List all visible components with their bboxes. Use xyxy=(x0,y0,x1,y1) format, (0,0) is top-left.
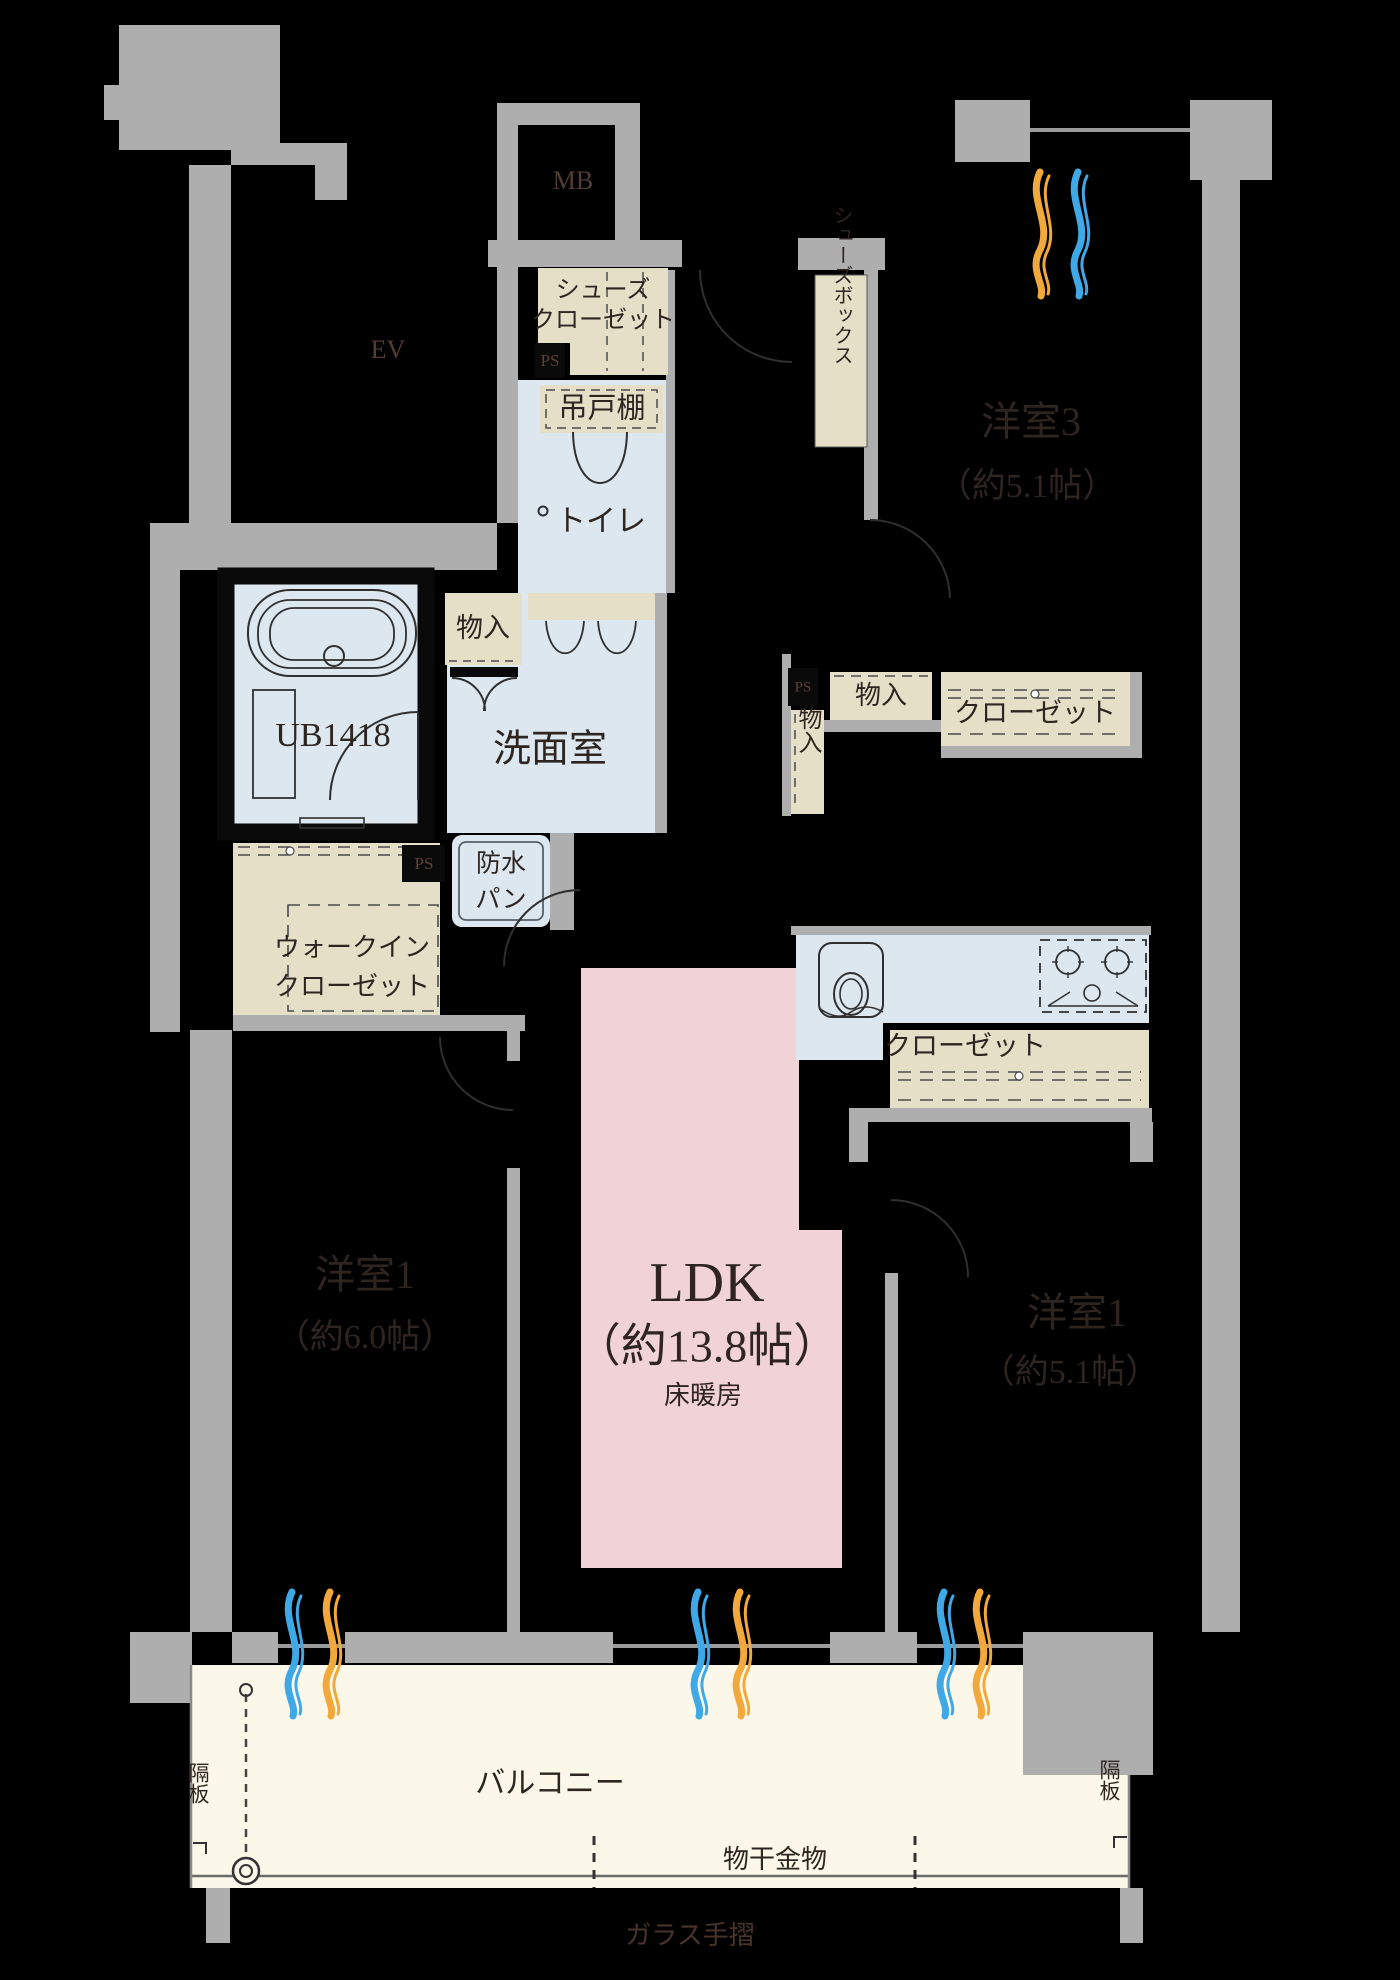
room1r-size: （約5.1帖） xyxy=(981,1353,1160,1391)
wall-room1r-left xyxy=(885,1273,898,1632)
ub-label: UB1418 xyxy=(275,717,390,754)
ps3-label: PS xyxy=(795,679,812,695)
waves-room3 xyxy=(1036,172,1089,296)
wall-left-middle xyxy=(150,570,180,1032)
room1r-name: 洋室1 xyxy=(1027,1290,1127,1335)
bathroom xyxy=(226,576,426,832)
ev-label: EV xyxy=(371,335,406,364)
shoes-closet-box-b xyxy=(570,343,668,375)
room1l-name: 洋室1 xyxy=(315,1252,415,1297)
balcony-label: バルコニー xyxy=(475,1767,624,1800)
wall-evhall-right xyxy=(497,103,518,523)
shoes-closet-label-2: クローゼット xyxy=(531,307,675,334)
ps2-label: PS xyxy=(415,854,434,873)
wall-evhall-bottom xyxy=(150,523,497,570)
ldk-size: （約13.8帖） xyxy=(575,1321,840,1372)
wall-mb-right xyxy=(615,103,640,240)
room3-size: （約5.1帖） xyxy=(938,467,1117,505)
wall-left-lower xyxy=(190,1030,232,1632)
wall-room1l-right xyxy=(507,1168,520,1632)
wall-balcony-stub-left xyxy=(206,1888,230,1943)
ldk-name: LDK xyxy=(649,1252,764,1314)
wall-bottom-b xyxy=(830,1632,917,1663)
entrance-door-arc xyxy=(700,270,792,362)
waterproof-label-1: 防水 xyxy=(476,850,526,878)
partition-right-label: 隔板 xyxy=(1097,1759,1121,1801)
wall-topleft-notch xyxy=(104,85,120,120)
glass-handrail-label: ガラス手摺 xyxy=(625,1921,754,1950)
vanity-counter xyxy=(528,593,655,620)
wall-left-upper xyxy=(189,165,231,525)
drain-icon-outer xyxy=(233,1858,259,1884)
wall-closet2-stub-r xyxy=(1130,1122,1153,1162)
room1r-door-arc xyxy=(891,1200,968,1277)
closet2-label: クローゼット xyxy=(884,1031,1046,1061)
wall-room1l-doorframe xyxy=(507,1031,520,1061)
storage3-label: 物入 xyxy=(794,706,822,754)
washroom-label: 洗面室 xyxy=(493,729,607,771)
closet1-pole-dot xyxy=(1031,690,1039,698)
floorplan-page: MB EV PS PS PS シューズ クローゼット 吊戸棚 トイレ シューズボ… xyxy=(0,0,1400,1980)
wall-under-closet1 xyxy=(941,746,1142,758)
shoes-closet-label-1: シューズ xyxy=(556,277,651,304)
ldk-floor-heating: 床暖房 xyxy=(664,1381,742,1410)
wall-balcony-stub-right xyxy=(1120,1888,1143,1943)
wall-wic-bottom xyxy=(233,1015,525,1031)
wall-under-mb xyxy=(488,240,682,267)
wall-topleft-block xyxy=(119,25,280,150)
wall-washroom-right xyxy=(655,593,667,833)
room3-name: 洋室3 xyxy=(981,399,1081,444)
closet1-label: クローゼット xyxy=(954,698,1116,728)
storage2-label: 物入 xyxy=(855,681,907,710)
wave-orange xyxy=(1036,172,1044,296)
waterproof-label-2: パン xyxy=(475,887,526,914)
wall-right xyxy=(1202,160,1240,1632)
bathroom-box xyxy=(226,576,426,832)
mb-label: MB xyxy=(553,166,593,195)
wave-blue xyxy=(1074,172,1082,296)
wall-pan-right xyxy=(550,833,574,930)
wic-pole-dot xyxy=(286,847,294,855)
washroom-door-lintel xyxy=(450,667,518,677)
wall-closet1-rightstub xyxy=(1130,672,1142,746)
drying-hardware-label: 物干金物 xyxy=(723,1845,827,1874)
wall-closet2-stub-l xyxy=(849,1122,868,1162)
floorplan-svg: MB EV PS PS PS シューズ クローゼット 吊戸棚 トイレ シューズボ… xyxy=(0,0,1400,1980)
wall-bottom-a1 xyxy=(232,1632,278,1663)
wall-evhall-stub xyxy=(315,143,347,200)
wic-label-2: クローゼット xyxy=(274,972,430,1001)
wall-closet2-bottom xyxy=(849,1108,1152,1122)
room3-door-arc xyxy=(870,520,950,598)
partition-left-label: 隔板 xyxy=(186,1762,210,1804)
wall-topright-a xyxy=(955,100,1030,162)
ps1-label: PS xyxy=(541,351,560,370)
wall-bottom-a2 xyxy=(345,1632,613,1663)
wall-kitchen-top xyxy=(791,926,1151,935)
wall-bottomleft-block xyxy=(130,1632,192,1703)
room1l-size: （約6.0帖） xyxy=(276,1318,455,1356)
closet2-pole-dot xyxy=(1015,1072,1023,1080)
room1l-door-arc xyxy=(440,1037,513,1110)
toilet-label: トイレ xyxy=(556,505,646,538)
storage1-label: 物入 xyxy=(456,613,510,643)
hanging-cupboard-label: 吊戸棚 xyxy=(558,392,645,425)
wall-bottomright-block xyxy=(1023,1632,1153,1775)
shoes-box-label: シューズボックス xyxy=(830,205,852,365)
wic-label-1: ウォークイン xyxy=(274,933,430,962)
